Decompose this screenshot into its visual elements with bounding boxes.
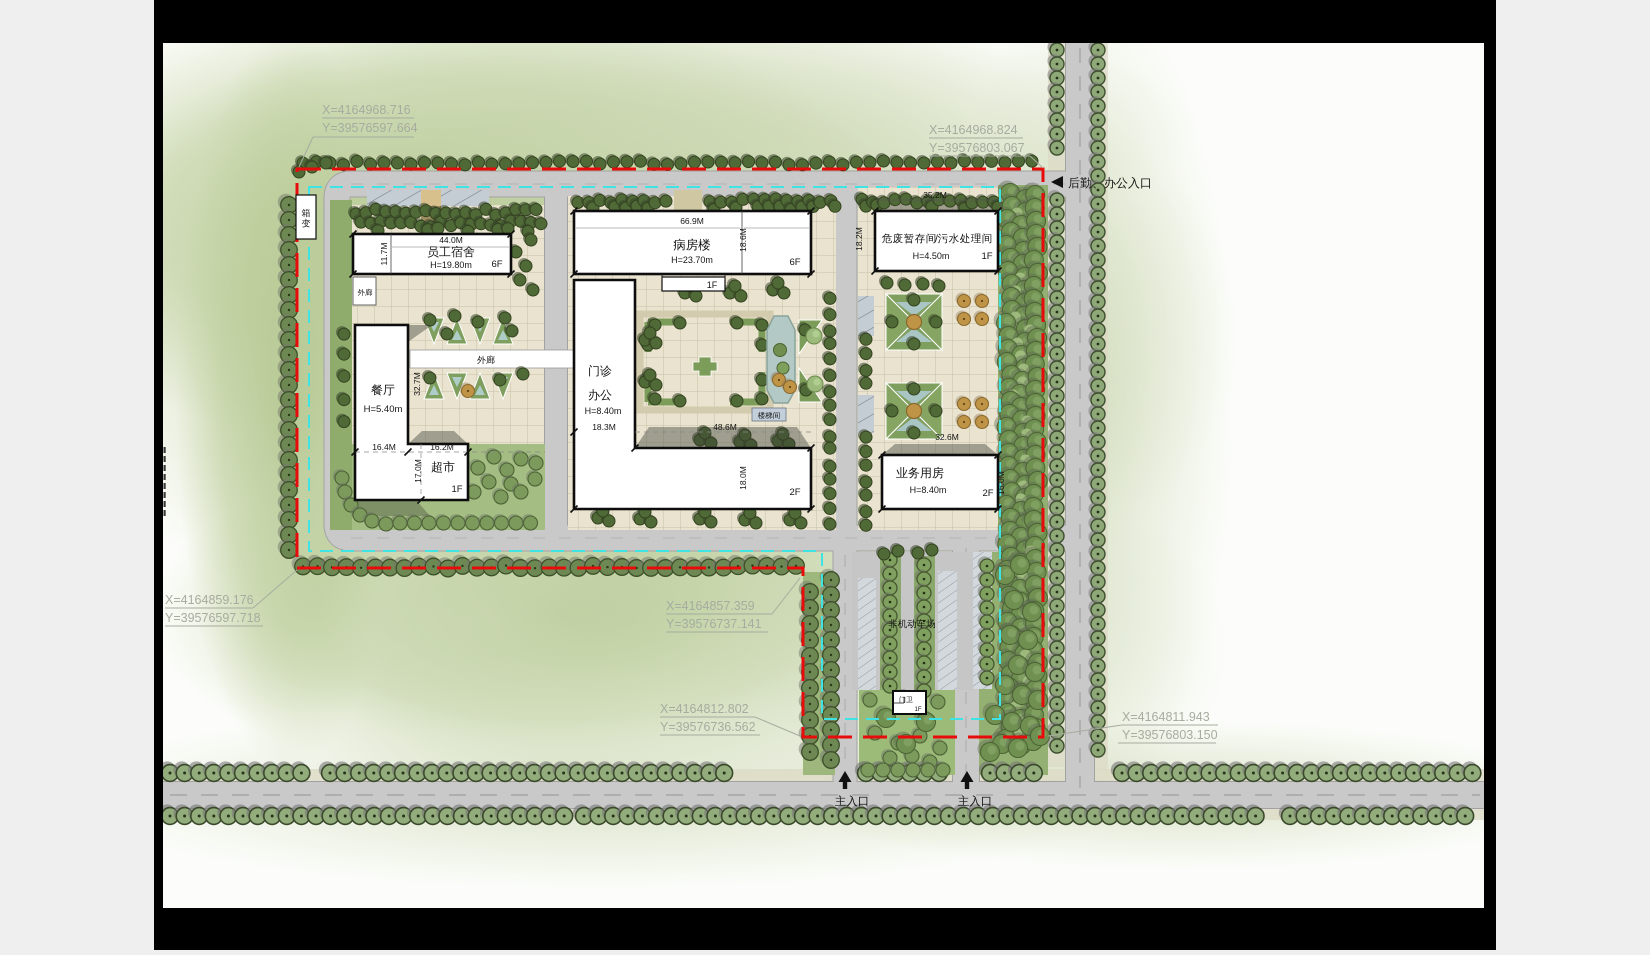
- svg-text:2F: 2F: [789, 487, 800, 498]
- svg-text:18.6M: 18.6M: [738, 228, 748, 252]
- svg-text:35.2M: 35.2M: [923, 190, 947, 200]
- svg-text:H=8.40m: H=8.40m: [910, 485, 947, 495]
- svg-text:/: /: [935, 233, 938, 245]
- svg-text:6F: 6F: [789, 257, 800, 268]
- svg-text:H=23.70m: H=23.70m: [671, 255, 713, 265]
- svg-text:17.0M: 17.0M: [413, 459, 423, 483]
- svg-text:44.0M: 44.0M: [439, 235, 463, 245]
- svg-text:18.3M: 18.3M: [592, 422, 616, 432]
- svg-text:18.2M: 18.2M: [854, 227, 864, 251]
- svg-text:2F: 2F: [982, 488, 993, 499]
- svg-text:Y=39576803.150: Y=39576803.150: [1122, 728, 1218, 742]
- svg-text:H=8.40m: H=8.40m: [585, 406, 622, 416]
- svg-text:X=4164811.943: X=4164811.943: [1122, 710, 1210, 724]
- svg-text:X=4164859.176: X=4164859.176: [165, 593, 254, 607]
- svg-text:H=5.40m: H=5.40m: [364, 404, 403, 415]
- svg-text:X=4164857.359: X=4164857.359: [666, 599, 755, 613]
- svg-text:X=4164968.824: X=4164968.824: [929, 123, 1018, 137]
- svg-text:16.2M: 16.2M: [430, 442, 454, 452]
- svg-text:66.9M: 66.9M: [680, 216, 704, 226]
- svg-text:1F: 1F: [451, 484, 462, 495]
- svg-text:Y=39576737.141: Y=39576737.141: [666, 617, 762, 631]
- svg-text:1F: 1F: [914, 707, 921, 713]
- svg-text:16.4M: 16.4M: [372, 442, 396, 452]
- svg-text:Y=39576597.718: Y=39576597.718: [165, 611, 261, 625]
- svg-text:H=4.50m: H=4.50m: [913, 251, 950, 261]
- svg-text:Y=39576736.562: Y=39576736.562: [660, 720, 756, 734]
- svg-text:Y=39576597.664: Y=39576597.664: [322, 121, 418, 135]
- svg-text:6F: 6F: [491, 259, 502, 270]
- svg-text:32.7M: 32.7M: [412, 372, 422, 396]
- svg-text:1F: 1F: [981, 251, 992, 262]
- svg-text:16.0M: 16.0M: [996, 471, 1006, 495]
- svg-text:Y=39576803.067: Y=39576803.067: [929, 141, 1025, 155]
- svg-text:48.6M: 48.6M: [713, 422, 737, 432]
- svg-text:X=4164812.802: X=4164812.802: [660, 702, 749, 716]
- svg-text:X=4164968.716: X=4164968.716: [322, 103, 411, 117]
- svg-text:1F: 1F: [707, 280, 718, 290]
- svg-text:11.7M: 11.7M: [379, 243, 389, 266]
- svg-text:18.0M: 18.0M: [738, 466, 748, 490]
- svg-text:32.6M: 32.6M: [935, 432, 959, 442]
- svg-text:H=19.80m: H=19.80m: [430, 260, 472, 270]
